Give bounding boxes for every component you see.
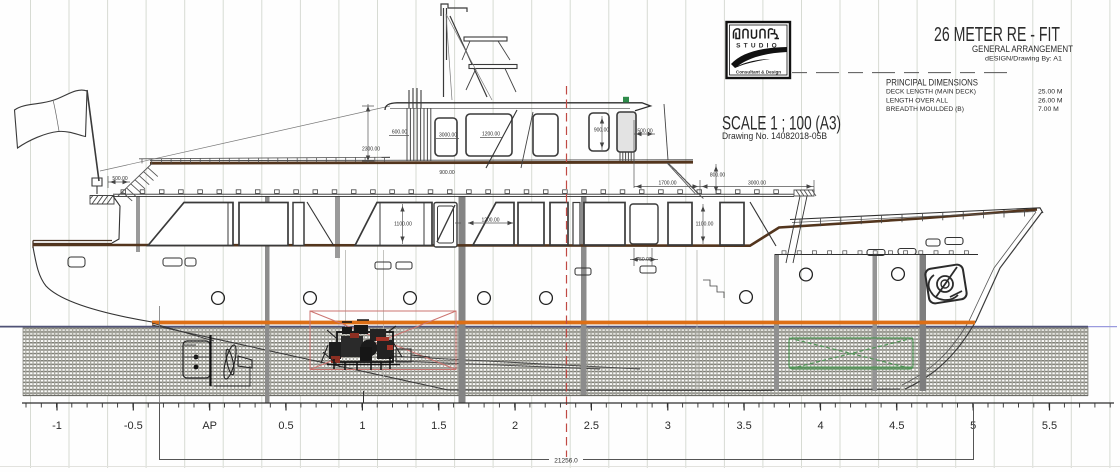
svg-text:3.5: 3.5 [736, 420, 751, 432]
svg-text:dESIGN/Drawing By: A1: dESIGN/Drawing By: A1 [985, 56, 1063, 63]
svg-text:26.00 M: 26.00 M [1038, 98, 1063, 105]
svg-text:Drawing No. 14082018-05B: Drawing No. 14082018-05B [722, 131, 827, 141]
svg-text:4.5: 4.5 [889, 420, 904, 432]
svg-text:3000.00: 3000.00 [748, 181, 766, 187]
svg-text:DECK LENGTH (MAIN DECK): DECK LENGTH (MAIN DECK) [886, 89, 976, 96]
svg-text:25.00 M: 25.00 M [1038, 89, 1063, 96]
svg-text:800.00: 800.00 [710, 173, 726, 179]
svg-text:5.5: 5.5 [1042, 420, 1057, 432]
svg-text:2: 2 [512, 420, 518, 432]
svg-text:600.00: 600.00 [392, 130, 408, 136]
svg-text:1100.00: 1100.00 [394, 222, 412, 228]
svg-text:2.5: 2.5 [584, 420, 599, 432]
svg-text:1: 1 [359, 420, 365, 432]
svg-text:LENGTH OVER ALL: LENGTH OVER ALL [886, 98, 948, 105]
svg-text:21256.0: 21256.0 [554, 458, 578, 465]
svg-text:GENERAL ARRANGEMENT: GENERAL ARRANGEMENT [972, 44, 1074, 54]
svg-text:900.00: 900.00 [439, 170, 455, 176]
svg-text:4: 4 [817, 420, 823, 432]
svg-text:7.00 M: 7.00 M [1038, 106, 1059, 113]
svg-text:900.00: 900.00 [594, 128, 610, 134]
svg-text:BREADTH MOULDED (B): BREADTH MOULDED (B) [886, 106, 964, 113]
svg-text:500.00: 500.00 [637, 129, 653, 135]
svg-text:AP: AP [202, 420, 217, 432]
svg-text:3: 3 [665, 420, 671, 432]
svg-text:1200.00: 1200.00 [482, 132, 500, 138]
svg-text:1100.00: 1100.00 [696, 222, 714, 228]
svg-text:500.00: 500.00 [112, 176, 128, 182]
svg-text:750.00: 750.00 [636, 257, 652, 263]
svg-text:Consultant & Design: Consultant & Design [736, 70, 781, 75]
svg-text:0.5: 0.5 [278, 420, 293, 432]
svg-text:2300.00: 2300.00 [362, 147, 380, 153]
svg-text:-0.5: -0.5 [124, 420, 143, 432]
svg-text:3000.00: 3000.00 [439, 133, 457, 139]
svg-text:1200.00: 1200.00 [481, 218, 499, 224]
svg-text:1700.00: 1700.00 [658, 181, 676, 187]
svg-text:1.5: 1.5 [431, 420, 446, 432]
svg-text:-1: -1 [52, 420, 62, 432]
svg-text:PRINCIPAL DIMENSIONS: PRINCIPAL DIMENSIONS [886, 78, 978, 88]
svg-text:26 METER RE - FIT: 26 METER RE - FIT [934, 24, 1060, 46]
